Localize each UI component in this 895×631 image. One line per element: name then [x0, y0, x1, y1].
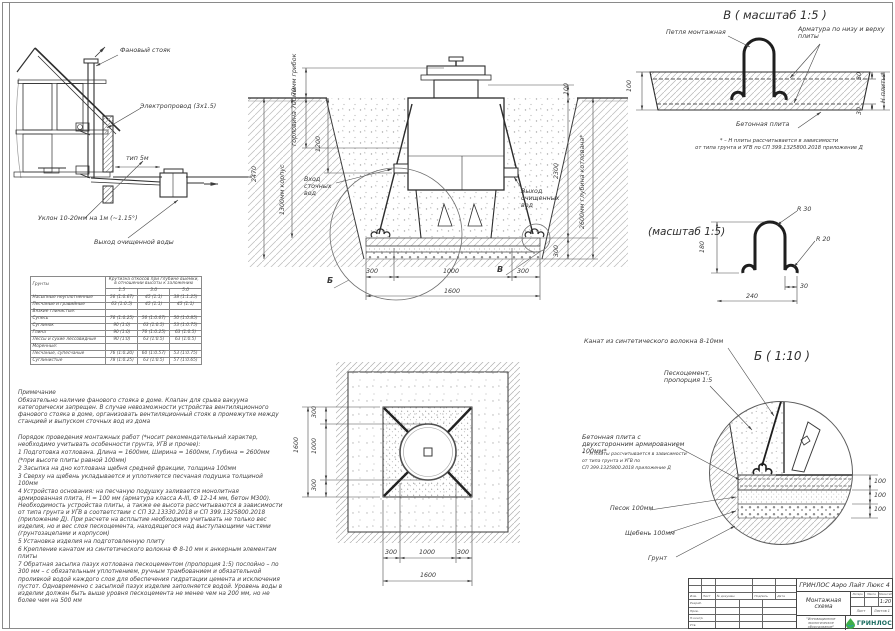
plan-dim-1600-left: 1600	[293, 437, 300, 453]
layer-dim-100b: 100	[874, 492, 886, 499]
company-logo: ГРИНЛОС	[846, 616, 892, 630]
install-step: 4 Устройство основания: на песчаную поду…	[18, 489, 284, 538]
radius-30-label: R 30	[797, 206, 811, 213]
soils-col-header: Грунты	[31, 277, 106, 296]
rope-label: Канат из синтетического волокна 8-10мм	[584, 338, 723, 345]
table-row: Моренные:	[31, 344, 202, 351]
detail-b-note-2: от типа грунта и УГВ по	[582, 459, 640, 464]
dim-180: 180	[699, 241, 706, 253]
plan-view-drawing	[280, 355, 535, 595]
dim-bottom-300a: 300	[366, 268, 378, 275]
loop-detail-drawing	[655, 195, 895, 310]
callout-b-label: Б	[327, 277, 333, 286]
dim-bottom-1600: 1600	[444, 288, 460, 295]
gravel-layer-label: Щебень 100мм	[625, 530, 675, 537]
pit-depth-label: 2600мм глубина котлована*	[579, 135, 586, 229]
soil-label: Грунт	[648, 555, 667, 562]
dim-cover-30-top: 30	[856, 72, 863, 80]
scale-value: 1:20	[879, 598, 892, 607]
install-order-heading: Порядок проведения монтажных работ (*нос…	[18, 435, 284, 449]
house-linework	[14, 47, 252, 203]
install-step: 7 Обратная засыпка пазух котлована песко…	[18, 562, 284, 604]
detail-b-note-1: * – Н плиты рассчитывается в зависимости	[582, 452, 687, 457]
loop-shape	[743, 222, 797, 273]
body-dim-label: 1300мм корпус	[279, 165, 286, 216]
layer-dim-100c: 100	[874, 506, 886, 513]
plan-dim-300-l2: 300	[311, 479, 318, 491]
grinlos-logo-icon	[846, 618, 855, 629]
titleblock-left-grid: Изм. Лист № докумен. Подпись Дата Разраб…	[689, 579, 797, 628]
dim-2470: 2470	[251, 166, 258, 182]
titleblock-sheet-row: ЛистЛистов 1	[851, 607, 892, 615]
table-row: Песчаные, супесчаные76 (1:0.20)60 (1:0.5…	[31, 351, 202, 358]
house-drawing	[10, 28, 255, 273]
soils-table: Грунты Крутизна откосов при глубине выем…	[30, 276, 202, 365]
dim-1200: 1200	[315, 136, 322, 152]
dim-cover-30-bottom: 30	[856, 107, 863, 115]
dim-300-right: 300	[553, 245, 560, 257]
h-plate-label: Н плиты*	[880, 72, 887, 103]
plan-dim-1600-bottom: 1600	[420, 572, 436, 579]
install-step: 2 Засыпка на дно котлована щебня средней…	[18, 466, 284, 473]
install-step: 3 Сверху на щебень укладывается и уплотн…	[18, 474, 284, 488]
plan-dim-1000-l: 1000	[311, 438, 318, 454]
detail-b-title: Б ( 1:10 )	[722, 349, 842, 363]
install-step: 1 Подготовка котлована. Длина = 1600мм, …	[18, 450, 284, 464]
company-tagline: "Инновационное экологическое оборудовани…	[797, 616, 846, 630]
dim-240: 240	[746, 293, 758, 300]
fan-stack-label: Фановый стояк	[120, 47, 171, 54]
install-step: 5 Установка изделия на подготовленную пл…	[18, 539, 284, 546]
slope-label: Уклон 10-20мм на 1м (~1.15°)	[38, 215, 138, 222]
table-row: Суглинок90 (1:0)63 (1:0.5)53 (1:0.75)	[31, 323, 202, 330]
plan-dim-1000-b: 1000	[419, 549, 435, 556]
detail-v-note-2: от типа грунта и УГВ по СП 399.1325800.2…	[666, 146, 892, 152]
document-name: ГРИНЛОС Аэро Лайт Люкс 4	[797, 579, 892, 592]
dim-plate-100: 100	[626, 80, 633, 92]
house-dim-leaders	[85, 55, 178, 238]
clean-water-outlet-label: Выход очищенной воды	[94, 239, 174, 246]
inlet-label: Вход сточных вод	[304, 176, 338, 197]
dim-bottom-300b: 300	[517, 268, 529, 275]
table-row: Суглинистые78 (1:0.25)63 (1:0.5)57 (1:0.…	[31, 358, 202, 365]
table-row: Лессы и сухие лессовидные90 (1:0)63 (1:0…	[31, 337, 202, 344]
drawing-sheet: Фановый стояк Электропровод (3х1.5) тип …	[0, 0, 895, 631]
table-row: Глина90 (1:0)76 (1:0.25)63 (1:0.5)	[31, 330, 202, 337]
callout-v-label: В	[497, 266, 503, 275]
titleblock: Изм. Лист № докумен. Подпись Дата Разраб…	[688, 578, 893, 629]
notes-body: Обязательно наличие фанового стояка в до…	[18, 398, 284, 426]
electric-cable-label: Электропровод (3х1.5)	[140, 103, 216, 110]
titleblock-attr-values: 1:20	[851, 598, 892, 608]
dim-100-top-right: 100	[563, 83, 570, 95]
sand-layer-label: Песок 100мм	[610, 505, 653, 512]
layer-dim-100a: 100	[874, 478, 886, 485]
dim-foot-30: 30	[800, 283, 808, 290]
soils-slope-header: Крутизна откосов при глубине выемки, в о…	[106, 277, 202, 289]
outlet-label: Выход очищенных вод	[521, 188, 565, 209]
distance-label: тип 5м	[126, 155, 149, 162]
dim-bottom-1000: 1000	[443, 268, 459, 275]
dim-2300: 2300	[553, 163, 560, 179]
radius-20-label: R 20	[816, 236, 830, 243]
sandcement-label: Пескоцемент, пропорция 1:5	[664, 370, 728, 384]
concrete-plate-label: Бетонная плита	[736, 121, 789, 128]
titleblock-right: ГРИНЛОС Аэро Лайт Люкс 4 Монтажная схема…	[797, 579, 892, 628]
loop-detail-title: (масштаб 1:5)	[648, 226, 725, 238]
plan-dim-300-l1: 300	[311, 406, 318, 418]
sheet-title: Монтажная схема	[797, 592, 851, 615]
logo-text: ГРИНЛОС	[857, 620, 892, 627]
titleblock-header-row: Изм. Лист № докумен. Подпись Дата	[689, 593, 796, 600]
detail-v-title: В ( масштаб 1:5 )	[700, 8, 850, 22]
notes: Примечание Обязательно наличие фанового …	[18, 390, 284, 606]
detail-b-note-3: СП 399.1325800.2018 приложение Д	[582, 466, 671, 471]
loop-label: Петля монтажная	[666, 29, 726, 36]
detail-v-note-1: * – Н плиты рассчитывается в зависимости	[666, 139, 892, 145]
neck-dim-label: горловина 700мм	[291, 88, 298, 146]
plan-dim-300-b2: 300	[457, 549, 469, 556]
plan-dim-300-b1: 300	[385, 549, 397, 556]
rebar-label: Арматура по низу и верху плиты	[798, 26, 895, 40]
install-step: 6 Крепление канатом из синтетического во…	[18, 547, 284, 561]
notes-heading: Примечание	[18, 390, 284, 397]
